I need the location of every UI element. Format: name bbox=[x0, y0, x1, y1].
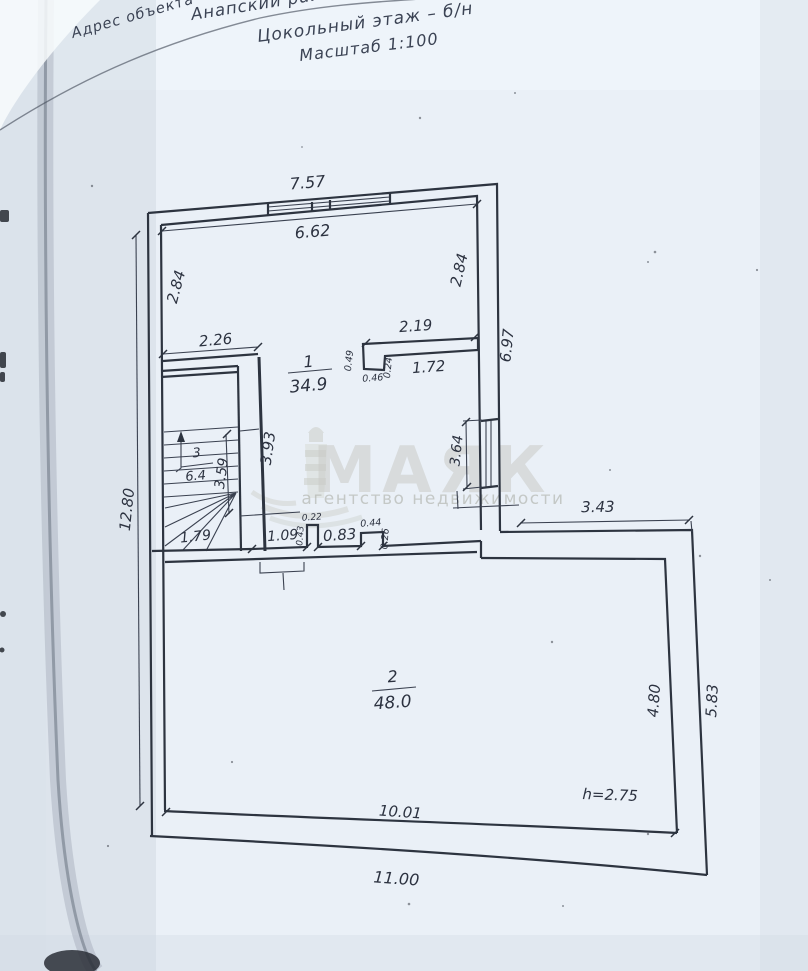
room3-number: 3 bbox=[192, 446, 202, 462]
floor-plan-svg: Адрес объекта Анапский район, Цокольный … bbox=[0, 0, 808, 971]
dim-top-outer: 7.57 bbox=[289, 171, 327, 193]
dim-partition-top: 2.26 bbox=[198, 330, 233, 351]
dim-r2-top: 3.43 bbox=[581, 498, 615, 517]
dim-open-a: 1.09 bbox=[267, 527, 299, 545]
dim-niche-bottom: 0.46 bbox=[362, 372, 384, 384]
dim-niche-step: 0.24 bbox=[382, 357, 395, 379]
room2-area: 48.0 bbox=[373, 692, 412, 715]
dim-right-outer: 6.97 bbox=[496, 327, 517, 363]
dim-open-c: 0.83 bbox=[322, 525, 357, 545]
room1-number: 1 bbox=[303, 352, 315, 372]
dim-open-d: 0.44 bbox=[360, 517, 382, 529]
dim-top-inner: 6.62 bbox=[294, 221, 331, 243]
dim-r2-right-outer: 5.83 bbox=[702, 684, 722, 718]
dim-r2-bottom-outer: 11.00 bbox=[373, 867, 420, 889]
scanned-floorplan-page: Адрес объекта Анапский район, Цокольный … bbox=[0, 0, 808, 971]
watermark-tagline: агентство недвижимости bbox=[301, 489, 564, 509]
dim-r2-right-inner: 4.80 bbox=[644, 683, 664, 718]
room2-number: 2 bbox=[387, 667, 398, 687]
dim-niche-inner: 1.72 bbox=[411, 357, 446, 377]
dim-niche-top: 2.19 bbox=[398, 316, 433, 336]
dim-stair-bottom: 1.79 bbox=[179, 527, 212, 546]
room3-area: 6.4 bbox=[185, 468, 207, 485]
dim-window-right: 3.64 bbox=[447, 434, 466, 467]
room1-area: 34.9 bbox=[289, 374, 328, 397]
dim-niche-left: 0.49 bbox=[343, 350, 356, 372]
dim-ceiling-height: h=2.75 bbox=[582, 785, 638, 805]
dim-open-a-h: 0.43 bbox=[295, 525, 306, 546]
dim-open-d-h: 0.26 bbox=[379, 528, 391, 550]
dim-open-b: 0.22 bbox=[302, 512, 323, 523]
dim-r2-bottom-inner: 10.01 bbox=[378, 802, 422, 823]
